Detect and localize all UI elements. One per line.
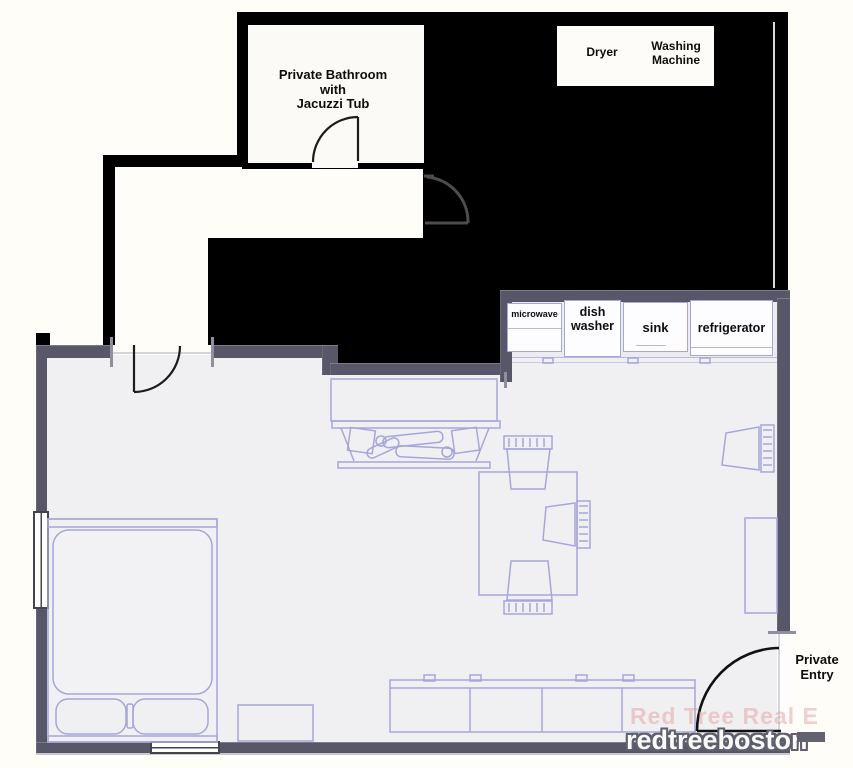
floor-plan: Private Bathroom with Jacuzzi Tub Dryer … — [0, 0, 853, 768]
private-entry-label: Private Entry — [785, 652, 849, 682]
main-room-door-swing-icon — [134, 345, 180, 392]
watermark-cutoff-stub — [797, 732, 825, 742]
corridor-door-swing-icon — [424, 176, 468, 223]
door-layer — [0, 0, 853, 768]
bathroom-door-swing-icon — [313, 117, 358, 162]
